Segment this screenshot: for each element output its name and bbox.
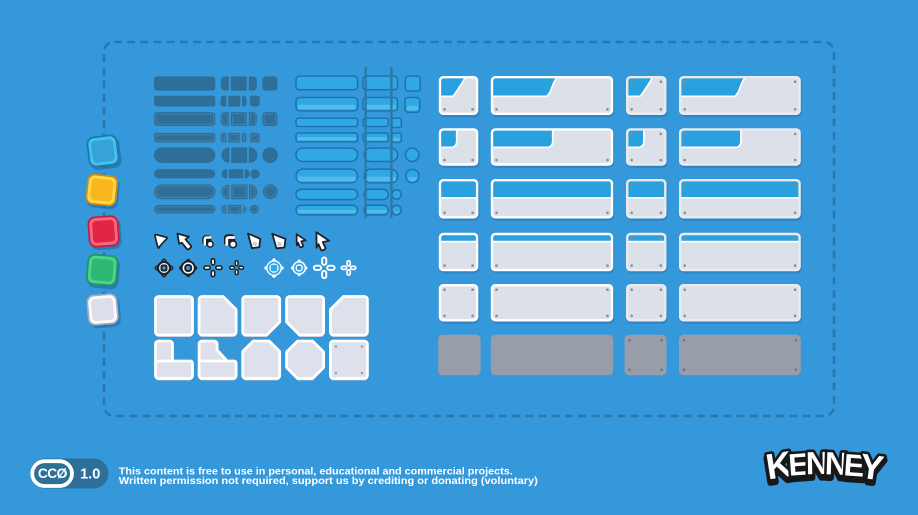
svg-text:1.0: 1.0 (80, 467, 100, 483)
svg-text:CCØ: CCØ (38, 466, 68, 481)
svg-text:Written permission not require: Written permission not required, support… (119, 476, 538, 487)
